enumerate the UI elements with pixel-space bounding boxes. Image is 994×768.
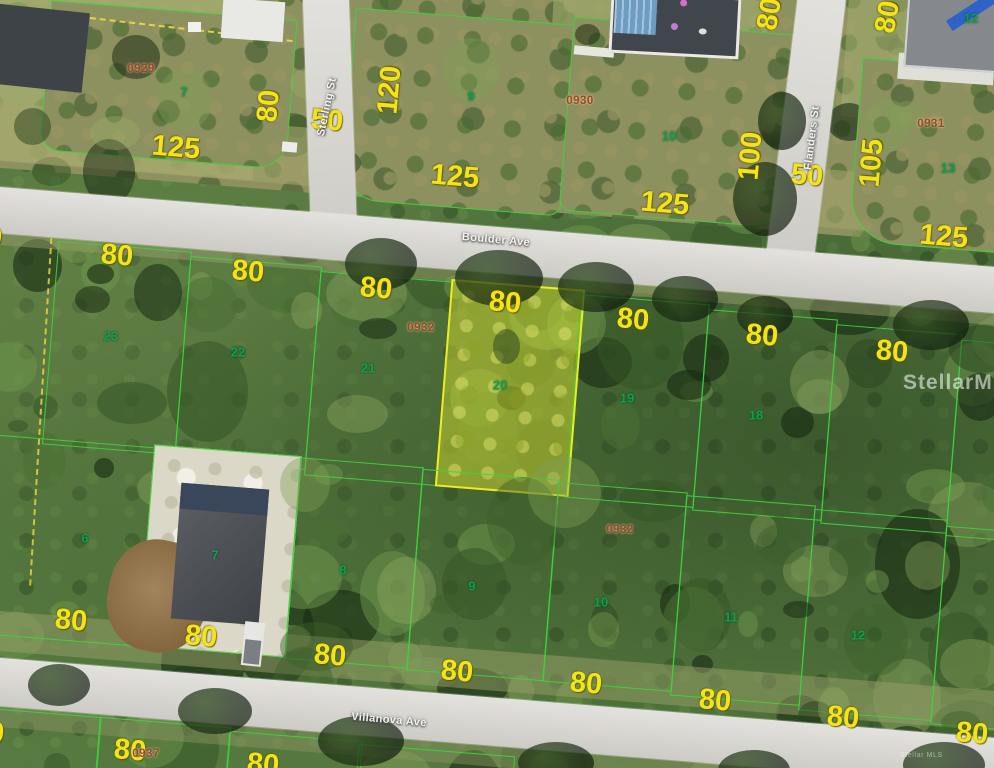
- lot-number-label: 7: [211, 548, 218, 563]
- parcel-id-label: 0932: [606, 524, 634, 536]
- dimension-label: 100: [732, 130, 769, 181]
- lot-number-label: 11: [724, 610, 738, 625]
- watermark-stellarmls: StellarMLS: [903, 371, 994, 395]
- dimension-label: 125: [918, 218, 969, 255]
- lot-number-label: 9: [467, 89, 474, 104]
- street-name-label: Boulder Ave: [461, 231, 530, 249]
- dimension-label: 80: [487, 285, 522, 321]
- lot-number-label: 7: [180, 85, 187, 100]
- aerial-parcel-map: 1258050120125125100501051258080808080808…: [0, 0, 994, 768]
- parcel-id-label: 0937: [132, 748, 160, 760]
- dimension-label: 80: [568, 666, 603, 702]
- parcel-id-label: 0932: [407, 322, 435, 334]
- dimension-label: 80: [744, 318, 779, 354]
- parcel-id-label: 0930: [566, 95, 594, 107]
- lot-number-label: 12: [964, 11, 978, 26]
- lot-number-label: 19: [620, 391, 634, 406]
- parcel-id-label: 0931: [917, 118, 945, 130]
- map-labels-layer: 1258050120125125100501051258080808080808…: [0, 0, 994, 768]
- lot-number-label: 10: [594, 595, 608, 610]
- dimension-label: 80: [251, 88, 287, 123]
- lot-number-label: 23: [104, 329, 118, 344]
- lot-number-label: 21: [361, 361, 375, 376]
- dimension-label: 80: [312, 638, 347, 674]
- dimension-label: 125: [429, 158, 480, 195]
- dimension-label: 80: [751, 0, 789, 33]
- dimension-label: 80: [245, 747, 280, 768]
- dimension-label: 125: [639, 185, 690, 222]
- dimension-label: 105: [853, 137, 890, 188]
- dimension-label: 80: [358, 271, 393, 307]
- dimension-label: 80: [954, 716, 989, 752]
- dimension-label: 80: [615, 302, 650, 338]
- dimension-label: 125: [150, 129, 201, 166]
- dimension-label: 80: [825, 700, 860, 736]
- dimension-label: 120: [371, 64, 408, 115]
- dimension-label: 80: [0, 219, 4, 255]
- dimension-label: 80: [439, 654, 474, 690]
- dimension-label: 80: [99, 238, 134, 274]
- lot-number-label: 9: [468, 579, 475, 594]
- lot-number-label: 22: [231, 345, 245, 360]
- dimension-label: 80: [53, 603, 88, 639]
- lot-number-label: 12: [851, 628, 865, 643]
- lot-number-label: 10: [662, 129, 676, 144]
- parcel-id-label: 0929: [127, 63, 155, 75]
- street-name-label: Villanova Ave: [351, 711, 427, 730]
- watermark-footer: Stellar MLS: [900, 752, 943, 759]
- dimension-label: 80: [183, 619, 218, 655]
- dimension-label: 80: [869, 0, 907, 36]
- lot-number-label: 13: [941, 161, 955, 176]
- dimension-label: 80: [874, 334, 909, 370]
- dimension-label: 80: [697, 683, 732, 719]
- dimension-label: 80: [230, 254, 265, 290]
- lot-number-label: 6: [81, 531, 88, 546]
- lot-number-label: 20: [493, 378, 507, 393]
- dimension-label: 80: [0, 715, 6, 751]
- lot-number-label: 8: [339, 563, 346, 578]
- lot-number-label: 18: [749, 408, 763, 423]
